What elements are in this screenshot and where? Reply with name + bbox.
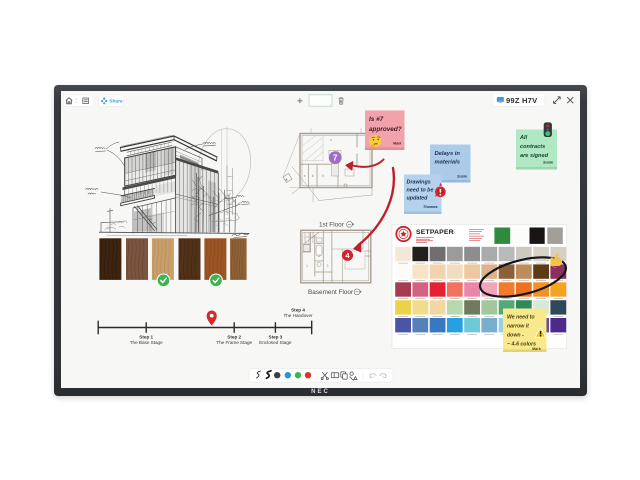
svg-text:Step 1: Step 1: [139, 335, 153, 340]
svg-text:b: b: [312, 174, 314, 178]
svg-text:Step 2: Step 2: [227, 335, 241, 340]
svg-text:are signed: are signed: [520, 153, 549, 159]
svg-text:h: h: [322, 174, 324, 178]
svg-text:Mark: Mark: [532, 347, 542, 351]
svg-text:materials: materials: [435, 160, 461, 166]
svg-text:down -: down -: [507, 333, 524, 339]
svg-text:1: 1: [306, 264, 308, 268]
svg-text:All: All: [519, 135, 528, 141]
svg-text:approved?: approved?: [369, 126, 402, 133]
svg-text:k: k: [330, 138, 332, 142]
svg-text:Susie: Susie: [457, 175, 467, 179]
svg-text:The Frame Stage: The Frame Stage: [216, 340, 252, 345]
svg-text:Enclosed Stage: Enclosed Stage: [259, 340, 292, 345]
svg-text:We need to: We need to: [507, 315, 535, 321]
svg-text:Basement Floor: Basement Floor: [308, 289, 354, 296]
svg-text:2: 2: [318, 254, 320, 258]
svg-text:The Base Stage: The Base Stage: [130, 340, 163, 345]
svg-text:Delays in: Delays in: [435, 151, 461, 157]
svg-text:Step 3: Step 3: [269, 335, 283, 340]
svg-text:contracts: contracts: [520, 144, 545, 150]
svg-text:Drawings: Drawings: [407, 180, 431, 186]
svg-text:Susie: Susie: [543, 161, 553, 165]
svg-text:Share: Share: [109, 98, 123, 104]
svg-text:Mark: Mark: [393, 142, 402, 146]
svg-text:SETPAPER: SETPAPER: [416, 229, 454, 236]
svg-text:Step 4: Step 4: [291, 308, 305, 313]
svg-text:3: 3: [327, 264, 329, 268]
svg-text:updated: updated: [407, 196, 429, 202]
svg-text:1st Floor: 1st Floor: [319, 222, 345, 229]
svg-text:99Z H7V: 99Z H7V: [506, 96, 538, 105]
svg-text:Thomas: Thomas: [423, 205, 438, 209]
svg-text:7: 7: [333, 154, 338, 163]
svg-text:narrow it: narrow it: [507, 324, 529, 330]
svg-text:s: s: [304, 174, 306, 178]
svg-text:need to be: need to be: [407, 188, 434, 194]
svg-text:Is #7: Is #7: [369, 116, 384, 123]
svg-text:The Handover: The Handover: [283, 313, 313, 318]
